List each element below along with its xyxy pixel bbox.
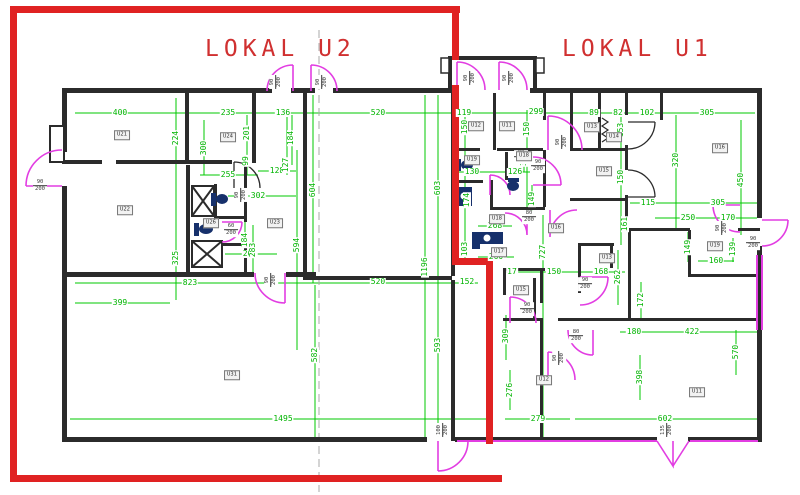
dimension-label: 103 bbox=[461, 241, 469, 257]
door-size-label: 60200 bbox=[224, 223, 238, 237]
dimension-label: 168 bbox=[593, 268, 609, 276]
dimension-label: 149 bbox=[684, 239, 692, 255]
dimension-label: 325 bbox=[172, 250, 180, 266]
door-size-label: 90200 bbox=[552, 351, 566, 365]
dimension-label: 17 bbox=[506, 268, 518, 276]
dimension-label: 279 bbox=[530, 415, 546, 423]
dimension-label: 115 bbox=[640, 199, 656, 207]
dimension-label: 1495 bbox=[272, 415, 293, 423]
door-size-label: 80200 bbox=[569, 329, 583, 343]
door-size-label: 90200 bbox=[520, 302, 534, 316]
room-label: U23 bbox=[267, 218, 283, 228]
unit2-title: LOKAL U2 bbox=[205, 36, 356, 62]
dimension-label: 152 bbox=[459, 278, 475, 286]
doors-group bbox=[26, 62, 788, 471]
dimension-label: 127 bbox=[282, 157, 290, 173]
door-size-label: 90200 bbox=[264, 273, 278, 287]
dimension-label: 594 bbox=[293, 237, 301, 253]
dimension-label: 398 bbox=[636, 369, 644, 385]
door-size-label: 90200 bbox=[746, 236, 760, 250]
door-size-label: 135200 bbox=[660, 423, 674, 437]
walls-group bbox=[62, 56, 762, 442]
dimension-label: 255 bbox=[220, 171, 236, 179]
room-label: U31 bbox=[224, 370, 240, 380]
dimension-label: 604 bbox=[309, 182, 317, 198]
room-label: U16 bbox=[712, 143, 728, 153]
dimension-label: 201 bbox=[243, 125, 251, 141]
unit1-title: LOKAL U1 bbox=[562, 36, 713, 62]
dimension-label: 82 bbox=[612, 109, 624, 117]
room-label: U19 bbox=[707, 241, 723, 251]
floor-plan-canvas: LOKAL U2 LOKAL U1 4002351365201192998982… bbox=[0, 0, 800, 495]
room-label: U26 bbox=[203, 218, 219, 228]
room-label: U18 bbox=[489, 214, 505, 224]
vestibule-tab-left bbox=[441, 58, 449, 73]
dimension-label: 172 bbox=[637, 292, 645, 308]
room-label: U12 bbox=[536, 375, 552, 385]
dimension-label: 276 bbox=[506, 382, 514, 398]
dimension-label: 89 bbox=[588, 109, 600, 117]
vestibule-tab-right bbox=[536, 58, 544, 73]
room-label: U11 bbox=[499, 121, 515, 131]
door-size-label: 90200 bbox=[269, 75, 283, 89]
dimension-label: 320 bbox=[672, 152, 680, 168]
room-label: U15 bbox=[513, 285, 529, 295]
dimension-label: 305 bbox=[699, 109, 715, 117]
dimension-label: 302 bbox=[250, 192, 266, 200]
dimension-label: 299 bbox=[528, 108, 544, 116]
dimension-label: 150 bbox=[546, 268, 562, 276]
toilet-icon bbox=[211, 193, 228, 206]
door-size-label: 90200 bbox=[234, 188, 248, 202]
dimension-label: 520 bbox=[370, 109, 386, 117]
dimension-label: 150 bbox=[617, 169, 625, 185]
room-label: U16 bbox=[548, 223, 564, 233]
room-label: U12 bbox=[468, 121, 484, 131]
door-size-label: 90200 bbox=[463, 71, 477, 85]
door-size-label: 100200 bbox=[436, 423, 450, 437]
dimension-label: 130 bbox=[464, 168, 480, 176]
dimension-label: 520 bbox=[370, 278, 386, 286]
dimension-label: 309 bbox=[502, 328, 510, 344]
room-label: U19 bbox=[464, 155, 480, 165]
dimension-label: 399 bbox=[112, 299, 128, 307]
dimension-label: 727 bbox=[539, 244, 547, 260]
dimension-label: 422 bbox=[684, 328, 700, 336]
dimension-label: 136 bbox=[275, 109, 291, 117]
room-label: U24 bbox=[220, 132, 236, 142]
door-size-label: 90200 bbox=[531, 159, 545, 173]
dimension-label: 823 bbox=[182, 279, 198, 287]
room-label: U13 bbox=[584, 122, 600, 132]
dimension-label: 283 bbox=[249, 242, 257, 258]
room-label: U21 bbox=[114, 130, 130, 140]
dimension-label: 400 bbox=[112, 109, 128, 117]
door-size-label: 90200 bbox=[33, 179, 47, 193]
room-label: U14 bbox=[606, 132, 622, 142]
dimension-label: 161 bbox=[621, 216, 629, 232]
dimension-label: 305 bbox=[710, 199, 726, 207]
room-label: U22 bbox=[117, 205, 133, 215]
dimension-label: 570 bbox=[732, 344, 740, 360]
dimension-label: 602 bbox=[657, 415, 673, 423]
dimension-label: 99 bbox=[242, 155, 250, 167]
room-label: U15 bbox=[596, 166, 612, 176]
door-size-label: 90200 bbox=[715, 221, 729, 235]
dimension-label: 1196 bbox=[421, 256, 429, 277]
windows-group bbox=[457, 255, 763, 442]
dimension-label: 262 bbox=[614, 269, 622, 285]
dimension-label: 582 bbox=[311, 347, 319, 363]
toilet-icon bbox=[507, 178, 519, 191]
floor-plan-drawing bbox=[0, 0, 800, 495]
dimension-label: 119 bbox=[456, 109, 472, 117]
dimension-label: 235 bbox=[220, 109, 236, 117]
dimension-label: 126 bbox=[507, 168, 523, 176]
room-label: U11 bbox=[689, 387, 705, 397]
dimension-label: 450 bbox=[737, 172, 745, 188]
door-size-label: 90200 bbox=[555, 135, 569, 149]
room-label: U13 bbox=[599, 253, 615, 263]
room-label: U18 bbox=[516, 151, 532, 161]
door-size-label: 90200 bbox=[578, 277, 592, 291]
dimension-label: 149 bbox=[528, 191, 536, 207]
dimension-label: 160 bbox=[708, 257, 724, 265]
dimension-label: 603 bbox=[434, 180, 442, 196]
dimension-label: 250 bbox=[680, 214, 696, 222]
dimension-label: 184 bbox=[241, 232, 249, 248]
door-size-label: 80200 bbox=[522, 210, 536, 224]
dimension-label: 224 bbox=[172, 130, 180, 146]
dimension-label: 139 bbox=[729, 241, 737, 257]
door-size-label: 90200 bbox=[315, 75, 329, 89]
wall-niche bbox=[50, 126, 64, 162]
door-size-label: 90200 bbox=[502, 71, 516, 85]
dimension-label: 150 bbox=[523, 121, 531, 137]
dimension-label: 184 bbox=[287, 130, 295, 146]
dimension-label: 593 bbox=[434, 337, 442, 353]
dimension-label: 174 bbox=[463, 192, 471, 208]
room-label: U17 bbox=[491, 247, 507, 257]
dimension-label: 102 bbox=[639, 109, 655, 117]
dimension-label: 180 bbox=[626, 328, 642, 336]
dimension-label: 300 bbox=[200, 140, 208, 156]
